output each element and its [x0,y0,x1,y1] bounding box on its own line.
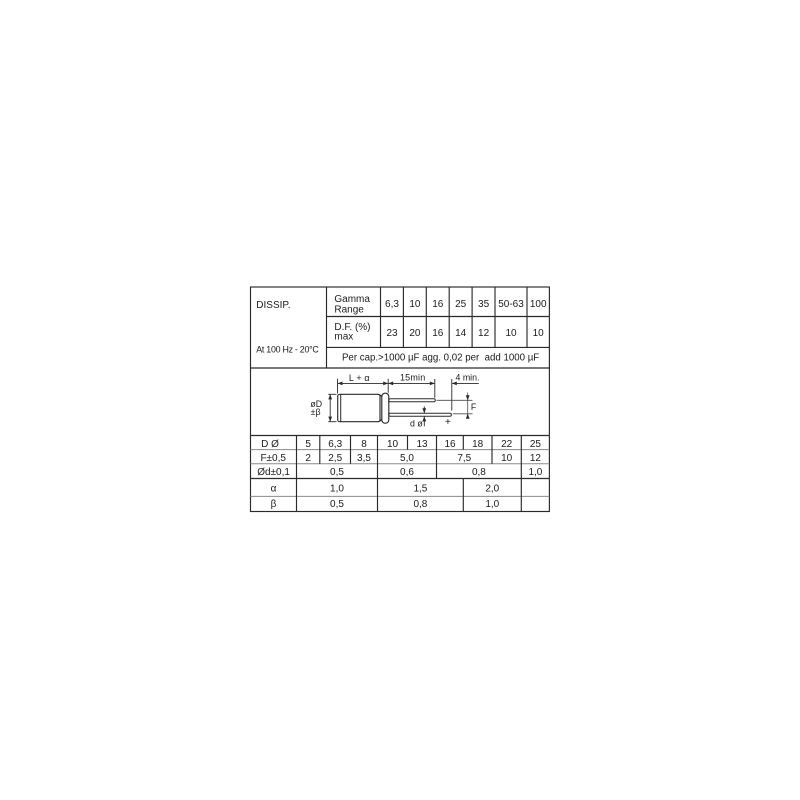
svg-text:F: F [471,402,477,412]
svg-text:8: 8 [361,439,367,450]
svg-text:Range: Range [334,305,364,316]
svg-text:7,5: 7,5 [457,453,471,464]
svg-text:20: 20 [409,328,421,339]
svg-text:5: 5 [305,439,311,450]
svg-text:1,0: 1,0 [485,499,499,510]
svg-text:50-63: 50-63 [498,299,524,310]
svg-text:1,0: 1,0 [330,483,344,494]
svg-text:10: 10 [409,299,421,310]
svg-text:Per cap.>1000 µF agg. 0,02 per: Per cap.>1000 µF agg. 0,02 per add 1000 … [342,353,539,364]
svg-text:13: 13 [416,439,428,450]
svg-text:25: 25 [530,439,542,450]
svg-text:23: 23 [386,328,398,339]
svg-text:10: 10 [501,453,513,464]
svg-text:3,5: 3,5 [357,453,371,464]
svg-text:2: 2 [305,453,311,464]
svg-text:15min: 15min [400,372,426,382]
svg-text:12: 12 [478,328,490,339]
svg-text:0,5: 0,5 [330,499,344,510]
svg-text:d ø: d ø [410,418,423,428]
svg-text:5,0: 5,0 [400,453,414,464]
svg-text:10: 10 [387,439,399,450]
svg-text:D Ø: D Ø [261,439,279,450]
svg-text:18: 18 [472,439,484,450]
svg-text:10: 10 [505,328,517,339]
svg-text:1,5: 1,5 [413,483,427,494]
svg-text:16: 16 [432,328,444,339]
svg-text:22: 22 [501,439,513,450]
svg-text:2,0: 2,0 [485,483,499,494]
svg-text:β: β [271,499,277,510]
svg-text:16: 16 [432,299,444,310]
svg-text:At 100 Hz - 20°C: At 100 Hz - 20°C [256,345,319,355]
svg-text:0,8: 0,8 [413,499,427,510]
svg-text:±β: ±β [311,407,321,417]
svg-text:16: 16 [444,439,456,450]
svg-text:6,3: 6,3 [328,439,342,450]
svg-text:L + α: L + α [349,373,370,383]
svg-text:6,3: 6,3 [385,299,399,310]
svg-text:14: 14 [455,328,467,339]
svg-text:Gamma: Gamma [334,294,370,305]
svg-text:12: 12 [530,453,542,464]
svg-text:0,6: 0,6 [400,467,414,478]
svg-text:max: max [334,331,353,342]
svg-text:0,5: 0,5 [330,467,344,478]
svg-text:+: + [445,417,451,428]
svg-text:10: 10 [533,328,545,339]
svg-text:35: 35 [478,299,490,310]
svg-text:1,0: 1,0 [528,467,542,478]
svg-text:25: 25 [455,299,467,310]
svg-text:2,5: 2,5 [328,453,342,464]
svg-text:4 min.: 4 min. [456,373,480,383]
svg-text:100: 100 [530,299,547,310]
svg-text:α: α [271,483,277,494]
svg-text:0,8: 0,8 [472,467,486,478]
svg-text:DISSIP.: DISSIP. [256,300,290,311]
svg-text:F±0,5: F±0,5 [260,453,286,464]
svg-text:Ød±0,1: Ød±0,1 [257,467,290,478]
